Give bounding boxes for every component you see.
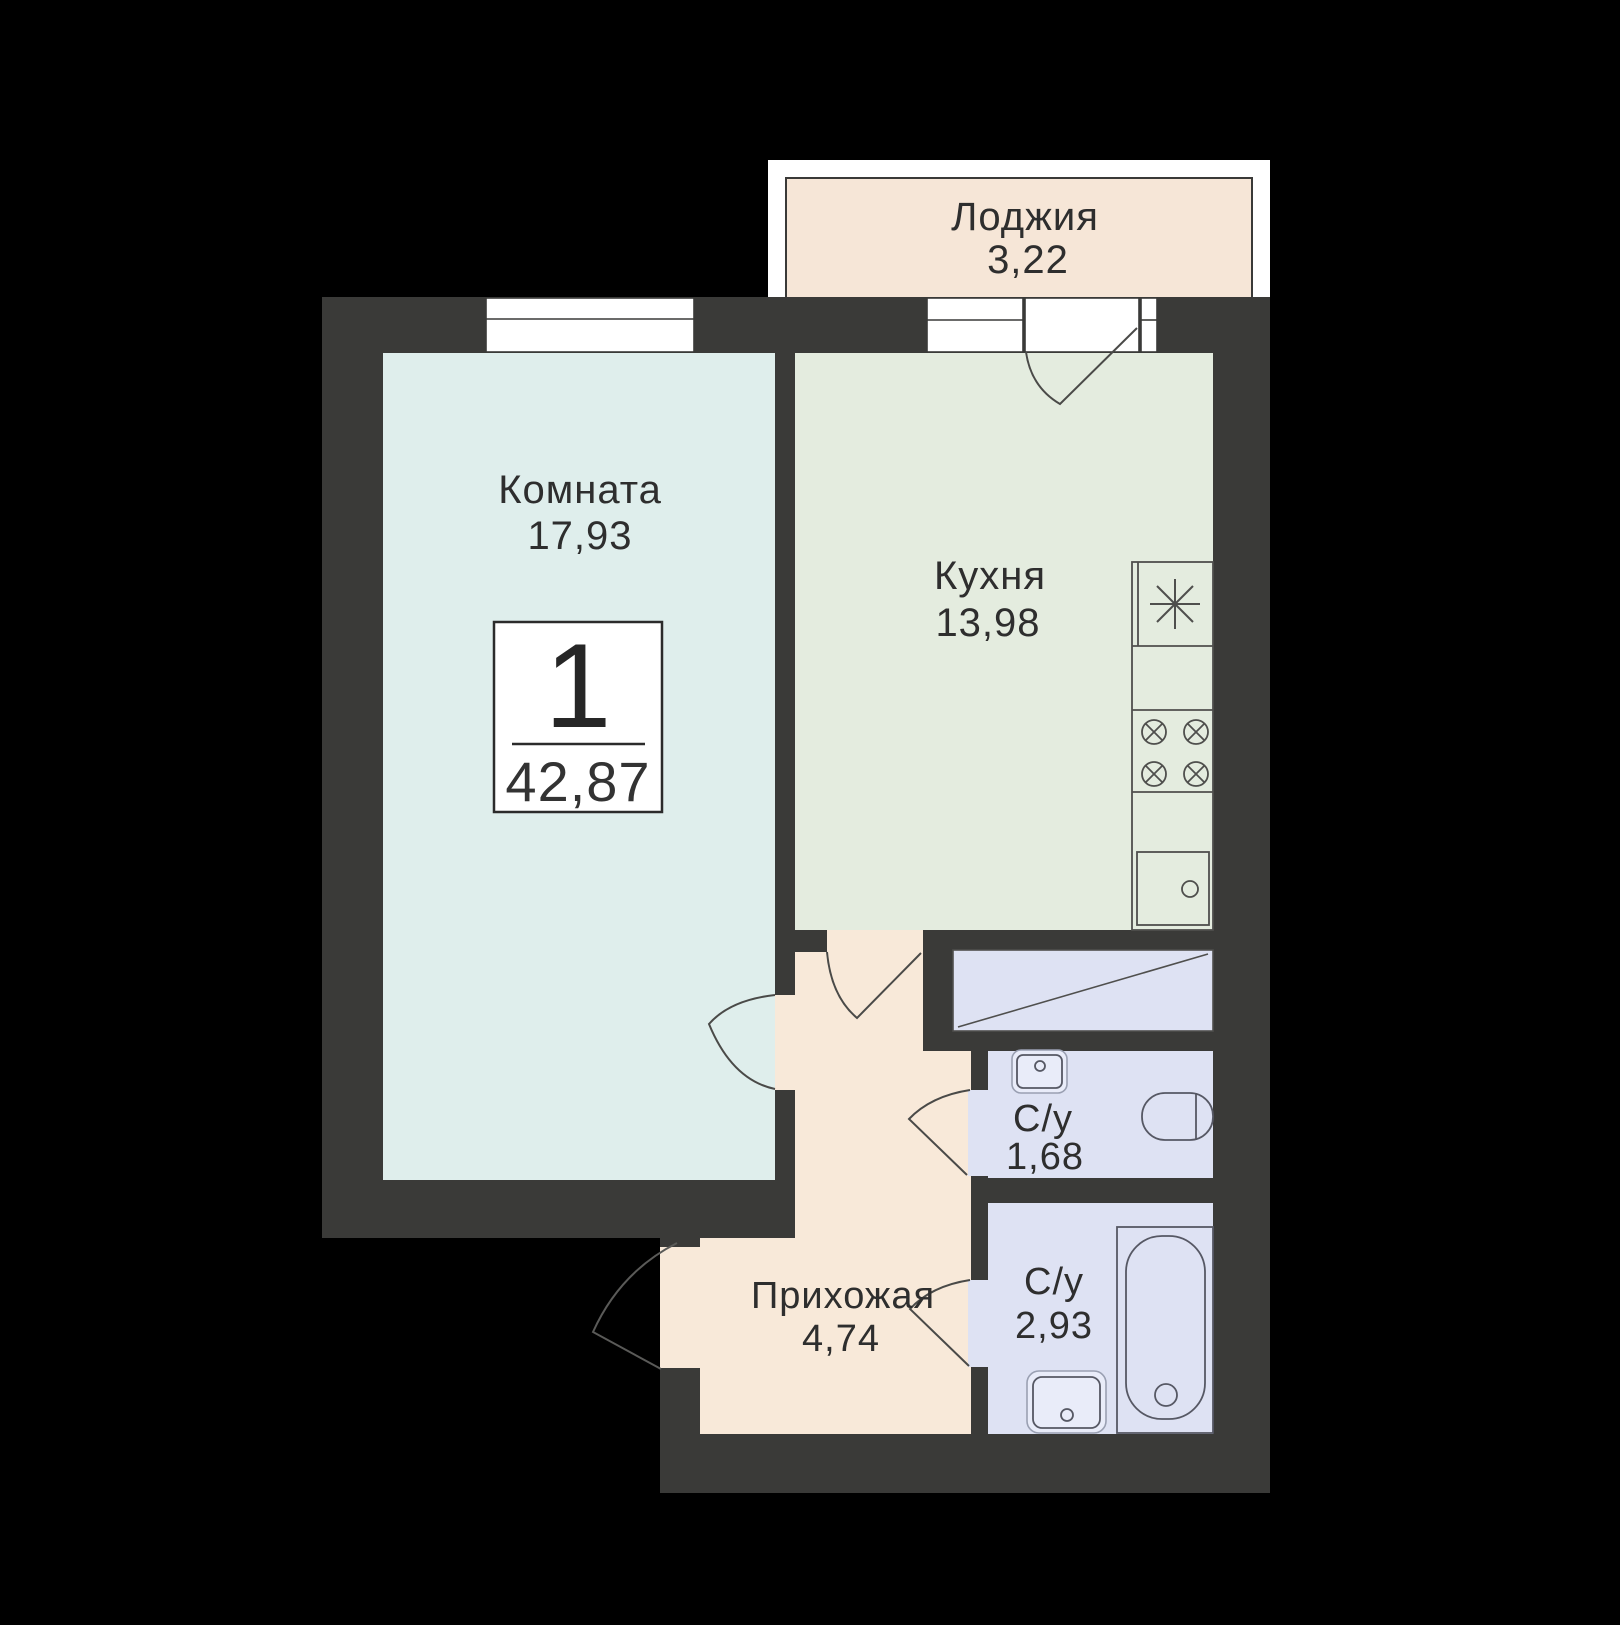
loggia-area: 3,22 <box>987 238 1069 282</box>
bathroom2-area: 2,93 <box>1015 1305 1093 1347</box>
hallway-area: 4,74 <box>802 1318 880 1360</box>
bathroom2-doorway <box>968 1280 990 1367</box>
balcony-side-panel-frame <box>1141 298 1157 352</box>
kitchen-window-frame <box>927 298 1023 352</box>
loggia-label: Лоджия <box>951 195 1099 239</box>
room-doorway <box>775 995 795 1090</box>
bathroom1-area: 1,68 <box>1006 1136 1084 1178</box>
plan-badge-rooms-count: 1 <box>545 619 612 753</box>
bathroom2-label: С/у <box>1024 1261 1084 1303</box>
entry-doorway <box>660 1247 700 1368</box>
bathroom1-label: С/у <box>1013 1098 1073 1140</box>
room-area: 17,93 <box>527 514 632 558</box>
floorplan-canvas: Лоджия 3,22 <box>0 0 1620 1620</box>
fridge-asterisk-icon <box>1150 579 1200 629</box>
kitchen-label: Кухня <box>934 554 1046 598</box>
room-label: Комната <box>498 468 662 512</box>
bathroom1-sink-icon <box>1012 1050 1067 1093</box>
bathroom1-label-group: С/у 1,68 <box>1006 1098 1084 1178</box>
room-window <box>486 298 694 352</box>
kitchen-area: 13,98 <box>935 601 1040 645</box>
loggia: Лоджия 3,22 <box>768 160 1270 300</box>
balcony-side-panel <box>1141 298 1157 352</box>
bathroom2-sink-icon <box>1027 1371 1106 1433</box>
plan-badge-total-area: 42,87 <box>505 750 650 813</box>
floorplan-page: Лоджия 3,22 <box>0 0 1620 1620</box>
plan-badge: 1 42,87 <box>494 619 662 813</box>
room-window-frame <box>486 298 694 352</box>
hallway-label: Прихожая <box>751 1275 935 1317</box>
wardrobe-strip <box>953 950 1213 1031</box>
bathroom1-doorway <box>968 1090 990 1176</box>
kitchen-window <box>927 298 1023 352</box>
kitchen-doorway <box>827 930 923 952</box>
